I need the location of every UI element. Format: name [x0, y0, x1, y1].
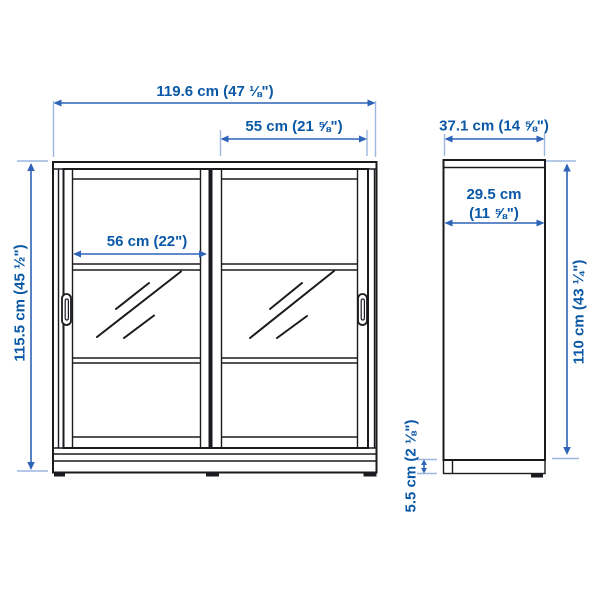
body-depth-label-line2: (11 ⅝") [469, 205, 519, 222]
diagram-svg: 119.6 cm (47 ⅛") 55 cm (21 ⅝") 56 cm (22… [0, 0, 600, 600]
side-foot [531, 474, 543, 478]
body-height-label: 110 cm (43 ¼") [571, 260, 588, 365]
dim-body-height: 110 cm (43 ¼") [546, 161, 588, 459]
plinth-height-label: 5.5 cm (2 ⅛") [403, 420, 420, 513]
cabinet-front-view [53, 162, 377, 477]
front-foot-center [206, 473, 219, 477]
left-door-glass-pane [97, 272, 181, 339]
dim-total-height: 115.5 cm (45 ½") [12, 161, 49, 471]
right-door-glass-pane [250, 271, 334, 338]
dim-body-depth: 29.5 cm (11 ⅝") [445, 186, 545, 227]
dim-inner-width: 56 cm (22") [73, 233, 207, 258]
inner-width-label: 56 cm (22") [107, 233, 188, 250]
dimension-diagram: 119.6 cm (47 ⅛") 55 cm (21 ⅝") 56 cm (22… [0, 0, 600, 600]
dim-plinth-height: 5.5 cm (2 ⅛") [403, 420, 438, 513]
left-door-handle [62, 294, 71, 325]
side-plinth [444, 460, 546, 474]
body-depth-label-line1: 29.5 cm [466, 186, 521, 203]
right-door-handle [358, 294, 367, 325]
door-width-label: 55 cm (21 ⅝") [245, 118, 342, 135]
dim-door-width: 55 cm (21 ⅝") [221, 118, 368, 156]
total-height-label: 115.5 cm (45 ½") [12, 244, 29, 361]
front-outer-frame [53, 162, 377, 473]
total-width-label: 119.6 cm (47 ⅛") [156, 83, 273, 100]
front-foot-right [364, 473, 377, 477]
total-depth-label: 37.1 cm (14 ⅝") [439, 118, 549, 135]
left-sliding-door [62, 169, 210, 448]
dim-total-depth: 37.1 cm (14 ⅝") [439, 118, 549, 157]
front-foot-left [54, 473, 65, 477]
right-sliding-door [212, 169, 369, 448]
